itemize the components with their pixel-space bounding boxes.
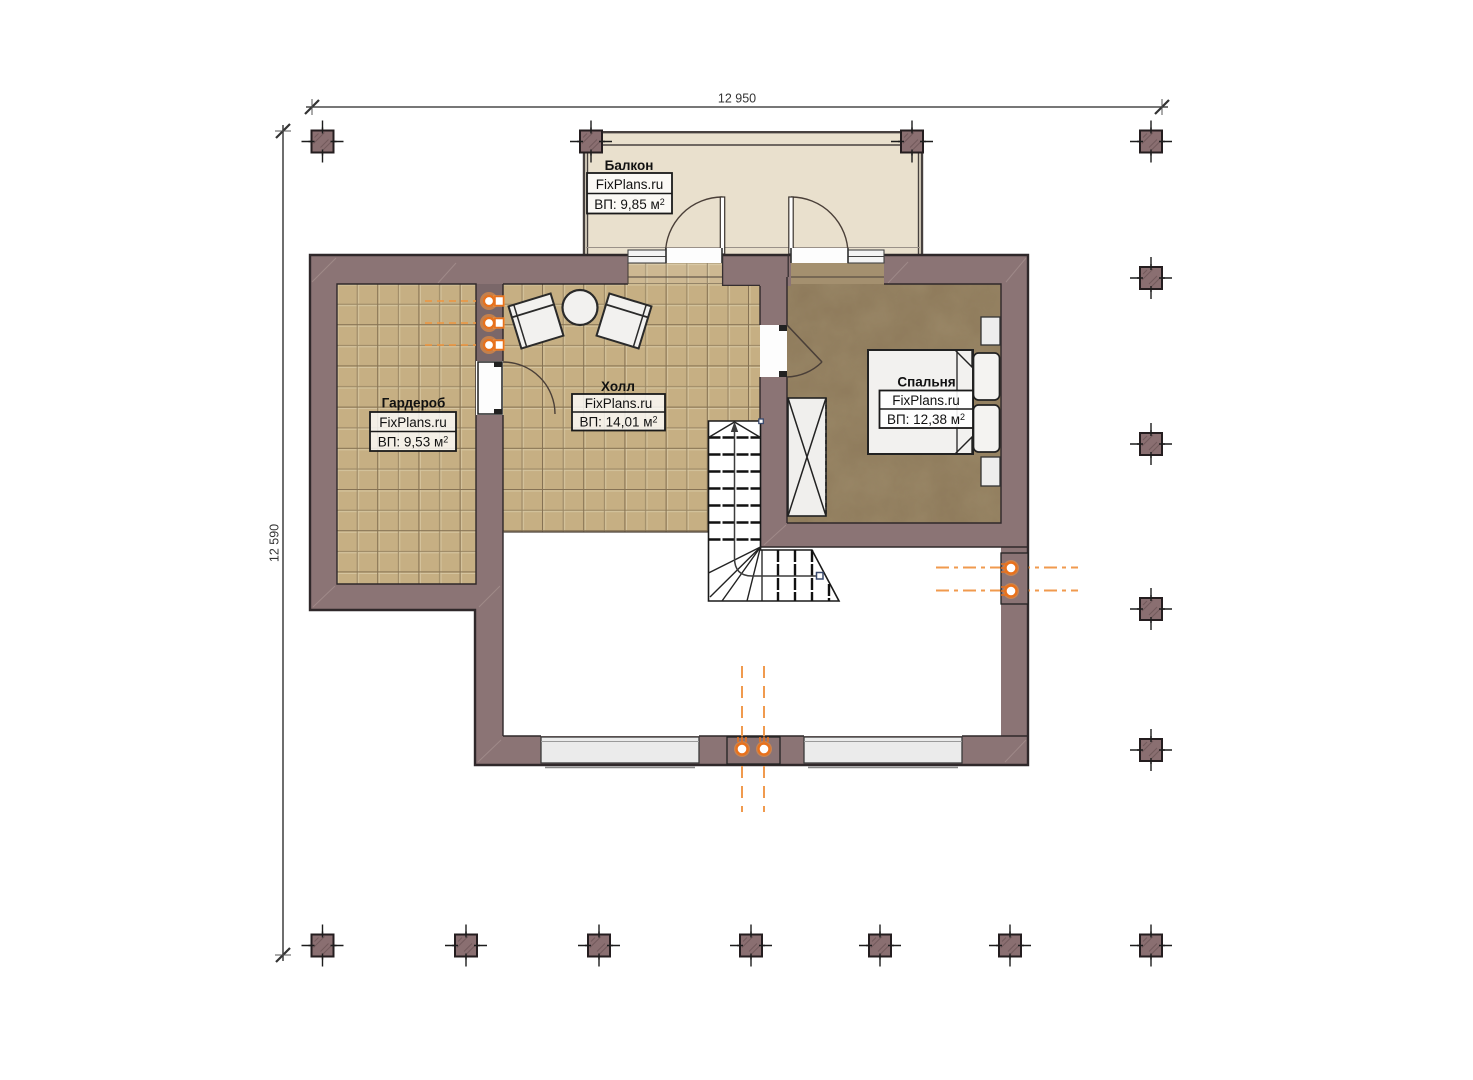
svg-text:Балкон: Балкон	[605, 158, 654, 173]
svg-text:12 590: 12 590	[268, 524, 282, 562]
svg-text:FixPlans.ru: FixPlans.ru	[585, 396, 653, 411]
svg-text:FixPlans.ru: FixPlans.ru	[379, 415, 447, 430]
svg-text:ВП: 9,53 м2: ВП: 9,53 м2	[378, 435, 449, 450]
svg-text:FixPlans.ru: FixPlans.ru	[892, 393, 960, 408]
svg-text:Спальня: Спальня	[897, 375, 955, 390]
svg-text:FixPlans.ru: FixPlans.ru	[596, 177, 664, 192]
svg-text:ВП: 14,01 м2: ВП: 14,01 м2	[579, 415, 657, 430]
svg-text:Холл: Холл	[601, 379, 635, 394]
svg-text:ВП: 12,38 м2: ВП: 12,38 м2	[887, 412, 965, 427]
svg-text:12 950: 12 950	[718, 92, 756, 106]
svg-text:Гардероб: Гардероб	[382, 396, 446, 411]
svg-text:ВП: 9,85 м2: ВП: 9,85 м2	[594, 197, 665, 212]
